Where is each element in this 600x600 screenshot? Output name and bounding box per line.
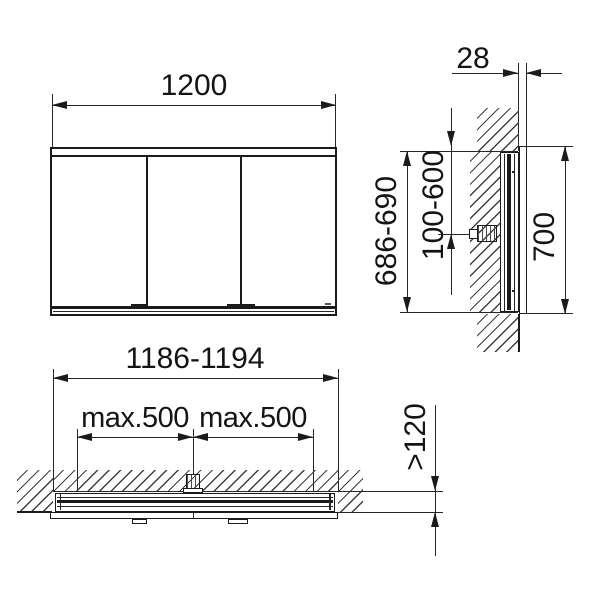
arrowhead-left-icon [193,433,208,441]
plan-connection-left-dimension-line [77,437,193,438]
arrowhead-left-icon [53,374,68,382]
cabinet-body-plan-dark-bar [57,500,333,504]
recess-back-line [53,491,443,492]
cabinet-body-end-cap-right [329,494,331,510]
drawing-canvas: 1200 28 [0,0,600,600]
arrowhead-up-icon [431,512,439,527]
arrowhead-right-icon [323,374,338,382]
mains-connection-box-plan [186,474,200,489]
wall-face-line-left [17,511,52,513]
door-handle-tab-center [228,519,248,524]
plan-view: 1186-1194 max.500 max.500 [0,0,600,600]
plan-connection-right-dimension-label: max.500 [178,403,328,433]
arrowhead-left-icon [77,433,92,441]
arrowhead-right-icon [178,433,193,441]
plan-depth-dimension-label: >120 [401,382,431,492]
mains-cable-line [193,429,194,474]
door-seam-line [193,513,194,518]
wall-hatch-left [17,470,53,512]
arrowhead-down-icon [431,476,439,491]
plan-width-dimension-line [53,378,338,379]
cabinet-body-plan-inner-line-1 [57,497,333,498]
door-handle-tab-left [132,519,147,524]
arrowhead-right-icon [298,433,313,441]
plan-width-range-dimension-label: 1186-1194 [95,344,295,374]
mirror-door-plan [50,512,338,519]
wall-face-line-right [338,512,443,513]
cabinet-body-end-cap-left [60,494,62,510]
cabinet-body-plan-inner-line-2 [57,506,333,507]
plan-connection-right-dimension-line [193,437,313,438]
mains-connection-flange-plan [183,488,203,493]
